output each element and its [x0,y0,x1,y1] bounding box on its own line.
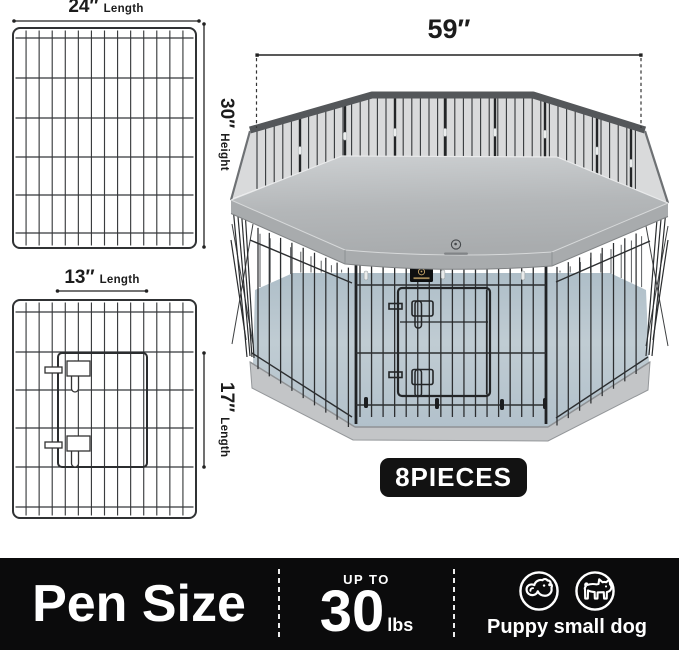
door-panel-height-label: 17″Length [217,382,236,457]
product-size-infographic: 24″Length 30″Height 13″Length 17″Length … [0,0,679,650]
weight-unit: lbs [387,618,413,636]
full-panel-length-label: 24″Length [13,0,199,16]
height-value: 30″ [216,98,237,128]
pen-size-section: Pen Size [0,558,278,650]
pen-size-title: Pen Size [32,574,246,634]
full-panel-height-label: 30″Height [217,98,236,171]
pen-size-info-bar: Pen Size UP TO 30 lbs [0,558,679,650]
length-unit: Length [104,3,144,15]
height-value: 17″ [216,382,237,412]
pen-illustration [231,95,668,441]
length-unit: Length [100,274,140,286]
pet-icons [518,570,616,612]
full-panel-diagram [13,28,196,248]
height-unit: Height [218,133,230,171]
weight-value-row: 30 lbs [320,587,414,636]
weight-value: 30 [320,587,385,636]
size-diagram-scene [0,0,679,650]
small-dog-icon [574,570,616,612]
pen-width-label: 59″ [257,16,641,43]
pen-width-value: 59″ [428,14,471,44]
pet-type-label: Puppy small dog [487,616,647,639]
pet-type-section: Puppy small dog [455,558,679,650]
door-panel-diagram [13,300,196,518]
height-unit: Length [218,417,230,457]
weight-section: UP TO 30 lbs [280,558,453,650]
door-panel-length-label: 13″Length [50,268,154,287]
pieces-badge: 8PIECES [380,458,527,497]
length-value: 24″ [68,0,98,17]
length-value: 13″ [64,267,94,288]
puppy-icon [518,570,560,612]
